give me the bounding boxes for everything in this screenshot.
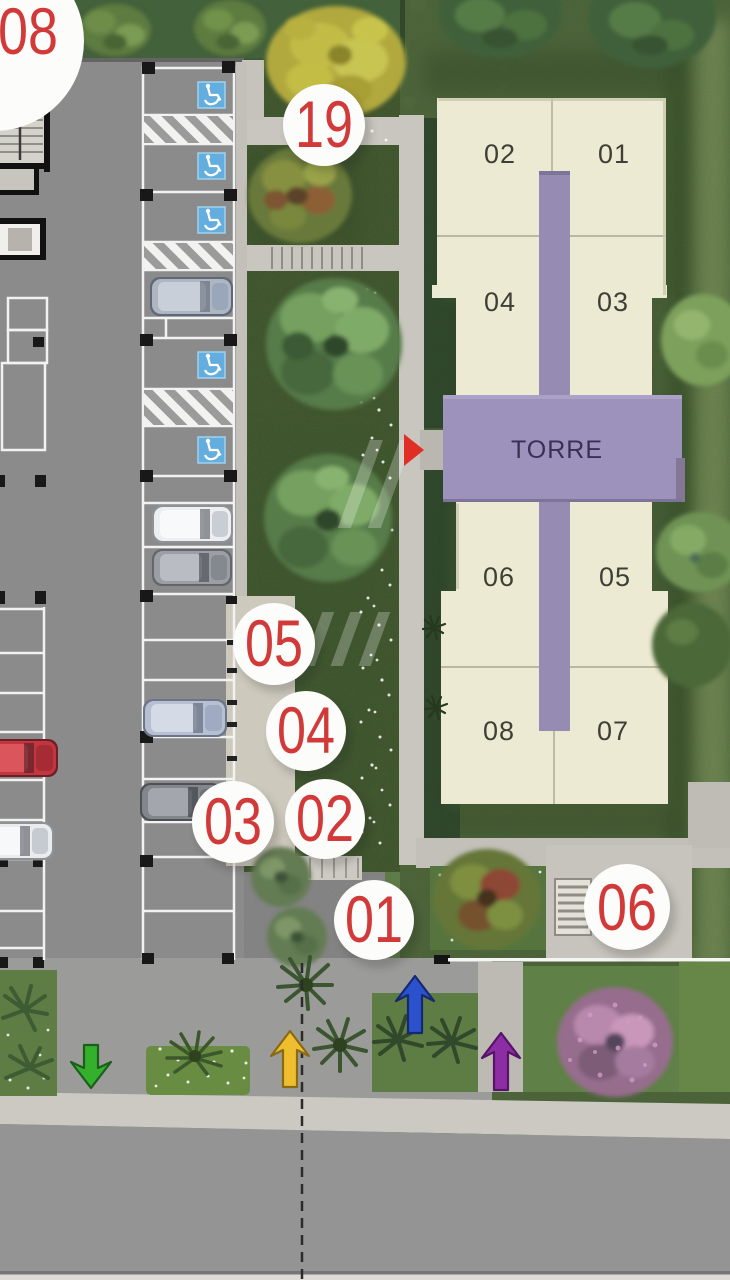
svg-text:04: 04 [484, 287, 516, 317]
svg-text:08: 08 [483, 716, 515, 746]
svg-text:05: 05 [245, 606, 303, 680]
svg-text:02: 02 [296, 781, 354, 855]
svg-text:05: 05 [599, 562, 631, 592]
svg-text:06: 06 [483, 562, 515, 592]
svg-text:01: 01 [345, 882, 403, 956]
svg-text:TORRE: TORRE [511, 436, 603, 464]
svg-text:02: 02 [484, 139, 516, 169]
svg-text:03: 03 [204, 784, 262, 858]
svg-text:19: 19 [295, 87, 353, 161]
svg-text:07: 07 [597, 716, 629, 746]
svg-text:06: 06 [597, 870, 657, 944]
svg-text:04: 04 [277, 693, 335, 767]
svg-text:03: 03 [597, 287, 629, 317]
svg-text:01: 01 [598, 139, 630, 169]
svg-text:08: 08 [0, 0, 58, 68]
